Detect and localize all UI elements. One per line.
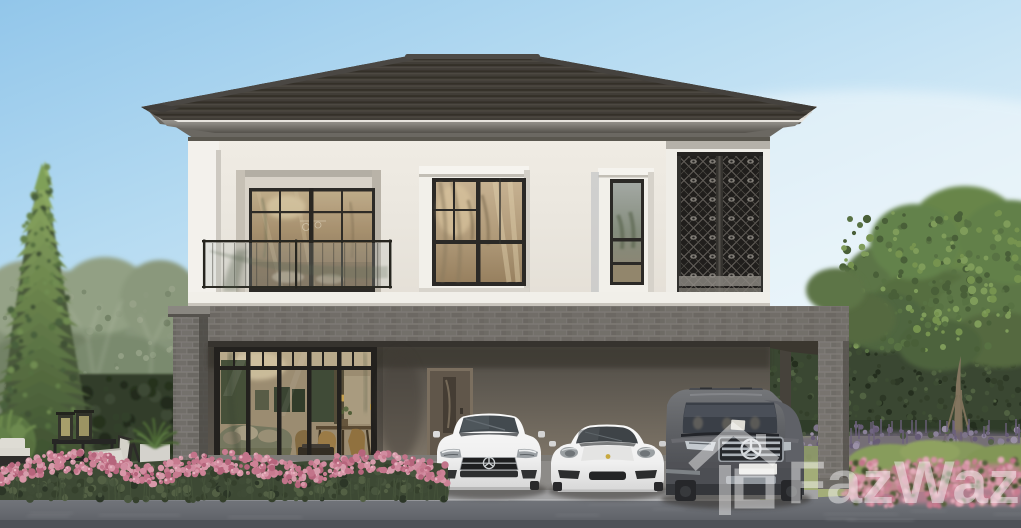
- svg-text:FazWaz: FazWaz: [787, 449, 1020, 516]
